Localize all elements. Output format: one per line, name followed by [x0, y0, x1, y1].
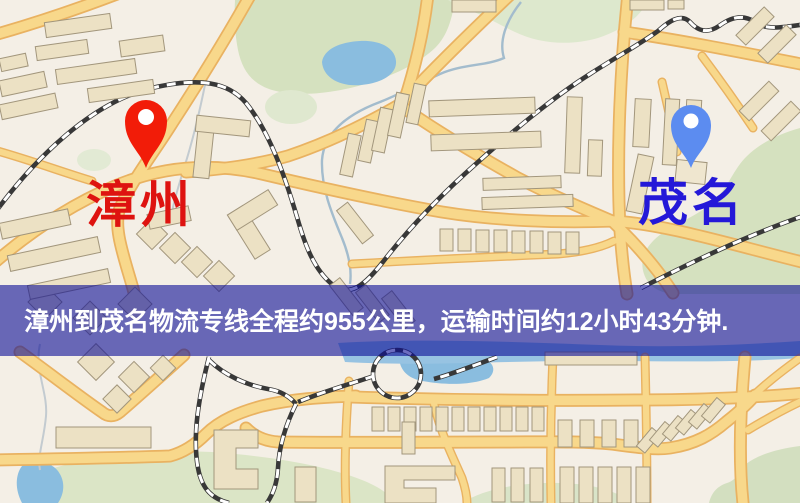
- destination-pin-hole: [684, 114, 699, 129]
- destination-label: 茂名: [638, 175, 746, 231]
- origin-pin-hole: [138, 109, 154, 125]
- route-map-image: 漳州 茂名 漳州到茂名物流专线全程约955公里，运输时间约12小时43分钟.: [0, 0, 800, 503]
- info-banner: 漳州到茂名物流专线全程约955公里，运输时间约12小时43分钟.: [0, 285, 800, 356]
- map-canvas: 漳州 茂名 漳州到茂名物流专线全程约955公里，运输时间约12小时43分钟.: [0, 0, 800, 503]
- origin-label: 漳州: [86, 177, 194, 233]
- info-banner-text: 漳州到茂名物流专线全程约955公里，运输时间约12小时43分钟.: [24, 307, 728, 336]
